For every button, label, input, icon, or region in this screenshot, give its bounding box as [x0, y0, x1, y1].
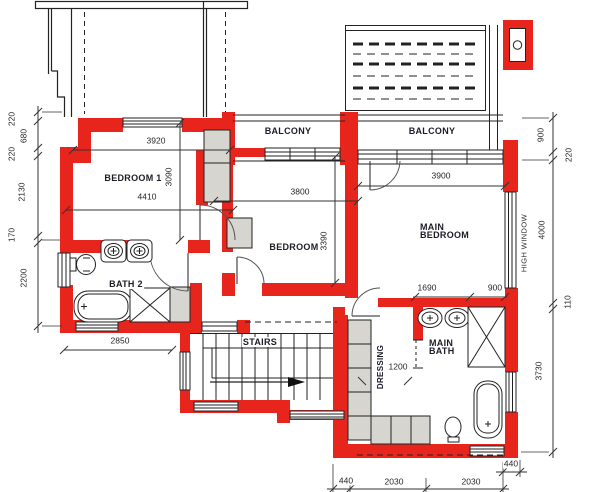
dim-left-4: 170 [8, 227, 17, 243]
dim-vanity-width: 1690 [417, 284, 438, 293]
dim-right-2: 4000 [538, 220, 547, 241]
dim-right-4: 3730 [535, 361, 544, 382]
room-label-main-bedroom-line2: BEDROOM [420, 231, 469, 240]
dim-bottom-0: 440 [338, 477, 354, 486]
label-high-window: HIGH WINDOW [520, 213, 529, 273]
room-label-dressing: DRESSING [376, 344, 386, 390]
dim-shower-width: 900 [487, 284, 503, 293]
dim-bedroom1-width: 4410 [137, 193, 158, 202]
dim-main-bedroom-width: 3900 [431, 172, 452, 181]
dim-bedroom2-depth: 3390 [320, 231, 329, 252]
dim-left-2: 220 [8, 146, 17, 162]
dim-bath2-width: 2850 [110, 337, 131, 346]
room-label-main-bath-line2: BATH [429, 347, 455, 356]
doors [150, 161, 423, 368]
room-label-balcony-left: BALCONY [264, 126, 313, 136]
dim-bedroom2-width: 3800 [290, 188, 311, 197]
vanity-sinks-main-bath [418, 309, 469, 328]
dim-bottom-1: 2030 [384, 478, 405, 487]
dim-left-5: 2200 [20, 268, 29, 289]
dim-dressing-width: 1200 [388, 363, 409, 372]
shower-bath2 [130, 288, 170, 322]
room-label-bath2: BATH 2 [108, 279, 144, 289]
toilet-main-bath [445, 417, 461, 442]
dim-right-1: 220 [565, 147, 574, 163]
shower-main-bath [468, 307, 505, 367]
chimney [503, 20, 533, 70]
bathtub-bath2 [74, 291, 132, 322]
room-label-stairs: STAIRS [242, 337, 278, 347]
dim-left-3: 2130 [18, 182, 27, 203]
room-label-balcony-right: BALCONY [408, 126, 457, 136]
roof-overhang-left [36, 2, 248, 118]
room-label-bedroom1: BEDROOM 1 [103, 173, 162, 183]
floor-plan: BEDROOM 1 BEDROOM 2 MAIN BEDROOM BATH 2 … [0, 0, 607, 492]
dim-bottom-2: 2030 [461, 478, 482, 487]
dim-left-1: 680 [20, 128, 29, 144]
bathtub-main-bath [474, 381, 502, 438]
toilet-bath2 [70, 255, 96, 275]
dim-bedroom1-top-wall: 3920 [146, 137, 167, 146]
dim-bottom-3: 440 [503, 460, 519, 469]
dim-left-0: 220 [8, 111, 17, 127]
dim-right-3: 110 [564, 294, 573, 310]
dim-right-0: 900 [537, 127, 546, 143]
dim-bedroom1-depth: 3090 [165, 167, 174, 188]
